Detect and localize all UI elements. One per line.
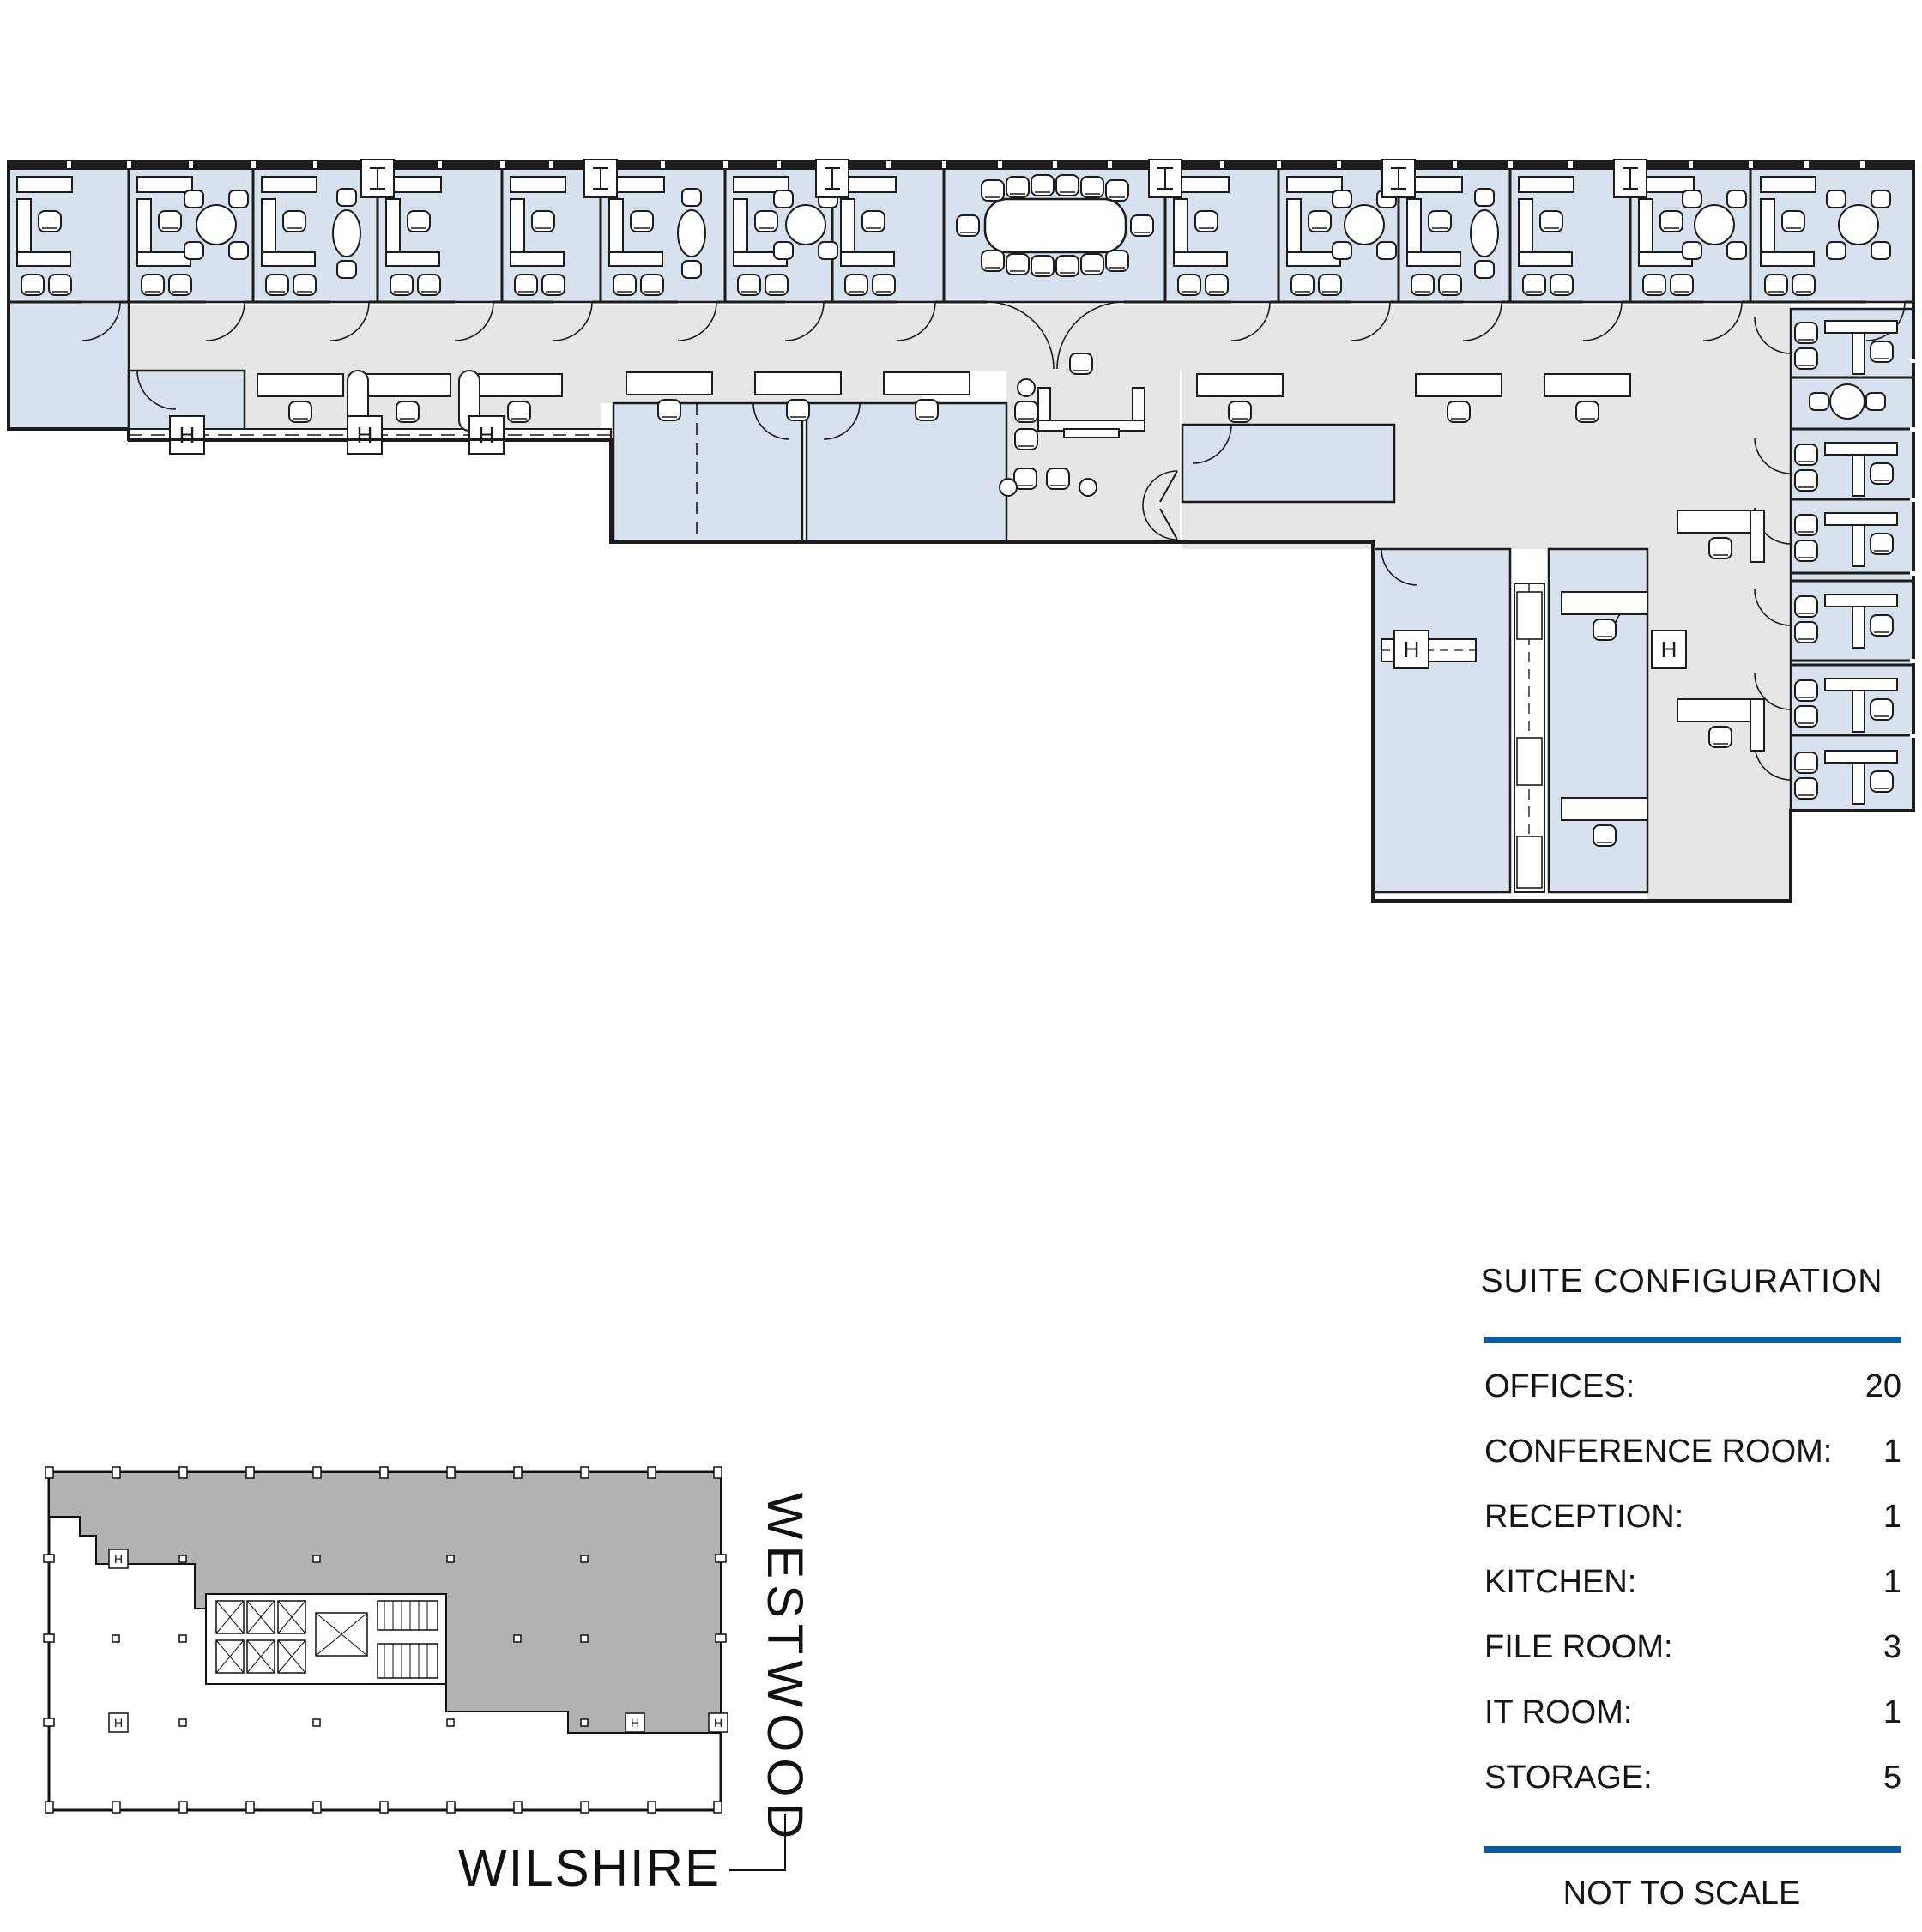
column-marker-h: H — [114, 1716, 123, 1730]
table-rule-top — [1484, 1337, 1901, 1343]
desk-return — [1750, 510, 1764, 562]
room-file-2 — [807, 403, 1006, 542]
table-row: CONFERENCE ROOM: 1 — [1484, 1419, 1901, 1484]
desk-return — [1750, 699, 1764, 751]
row-label: KITCHEN: — [1484, 1564, 1636, 1601]
key-plan: H H H H WESTWOOD WILSHIRE — [44, 1467, 813, 1897]
column-marker-h: H — [1404, 637, 1420, 662]
column-marker-h: H — [357, 422, 373, 448]
row-label: IT ROOM: — [1484, 1694, 1632, 1731]
suite-configuration-table: SUITE CONFIGURATION OFFICES: 20 CONFEREN… — [1448, 1263, 1915, 1932]
table-row: IT ROOM: 1 — [1484, 1680, 1901, 1745]
column-marker-h: H — [479, 422, 495, 448]
room-kitchen — [1182, 425, 1394, 502]
table-rule-bottom — [1484, 1846, 1901, 1853]
note-not-to-scale: NOT TO SCALE — [1448, 1875, 1915, 1912]
column-marker-h: H — [1661, 637, 1677, 662]
row-value: 1 — [1883, 1434, 1901, 1470]
column-marker-h: H — [114, 1552, 123, 1566]
row-value: 3 — [1883, 1629, 1901, 1666]
table-row: STORAGE: 5 — [1484, 1745, 1901, 1810]
row-value: 5 — [1883, 1760, 1901, 1796]
row-label: OFFICES: — [1484, 1368, 1635, 1405]
table-title: SUITE CONFIGURATION — [1448, 1263, 1915, 1301]
plan-sheet: H H H H H — [0, 0, 1922, 1932]
street-label-westwood: WESTWOOD — [757, 1493, 813, 1844]
room-file-1 — [613, 403, 802, 542]
room-file-3 — [1373, 549, 1510, 892]
table-row: OFFICES: 20 — [1484, 1354, 1901, 1419]
table-rows: OFFICES: 20 CONFERENCE ROOM: 1 RECEPTION… — [1448, 1343, 1915, 1810]
key-plan-core — [206, 1594, 446, 1684]
row-label: STORAGE: — [1484, 1760, 1653, 1796]
row-value: 20 — [1865, 1368, 1901, 1405]
table-row: FILE ROOM: 3 — [1484, 1615, 1901, 1680]
column-marker-h: H — [714, 1716, 722, 1730]
row-label: RECEPTION: — [1484, 1499, 1683, 1536]
table-row: KITCHEN: 1 — [1484, 1549, 1901, 1615]
row-value: 1 — [1883, 1564, 1901, 1601]
column-marker-h: H — [179, 422, 196, 448]
room-office-1-extension — [9, 302, 129, 429]
row-value: 1 — [1883, 1499, 1901, 1536]
row-label: FILE ROOM: — [1484, 1629, 1673, 1666]
row-label: CONFERENCE ROOM: — [1484, 1434, 1832, 1470]
column-marker-h: H — [631, 1716, 639, 1730]
street-label-wilshire: WILSHIRE — [458, 1839, 721, 1897]
row-value: 1 — [1883, 1694, 1901, 1731]
table-row: RECEPTION: 1 — [1484, 1484, 1901, 1549]
table-notes: NOT TO SCALE FURNITURE NOT INCLUDED — [1448, 1875, 1915, 1932]
main-floor-plan: H H H H H — [9, 160, 1917, 901]
